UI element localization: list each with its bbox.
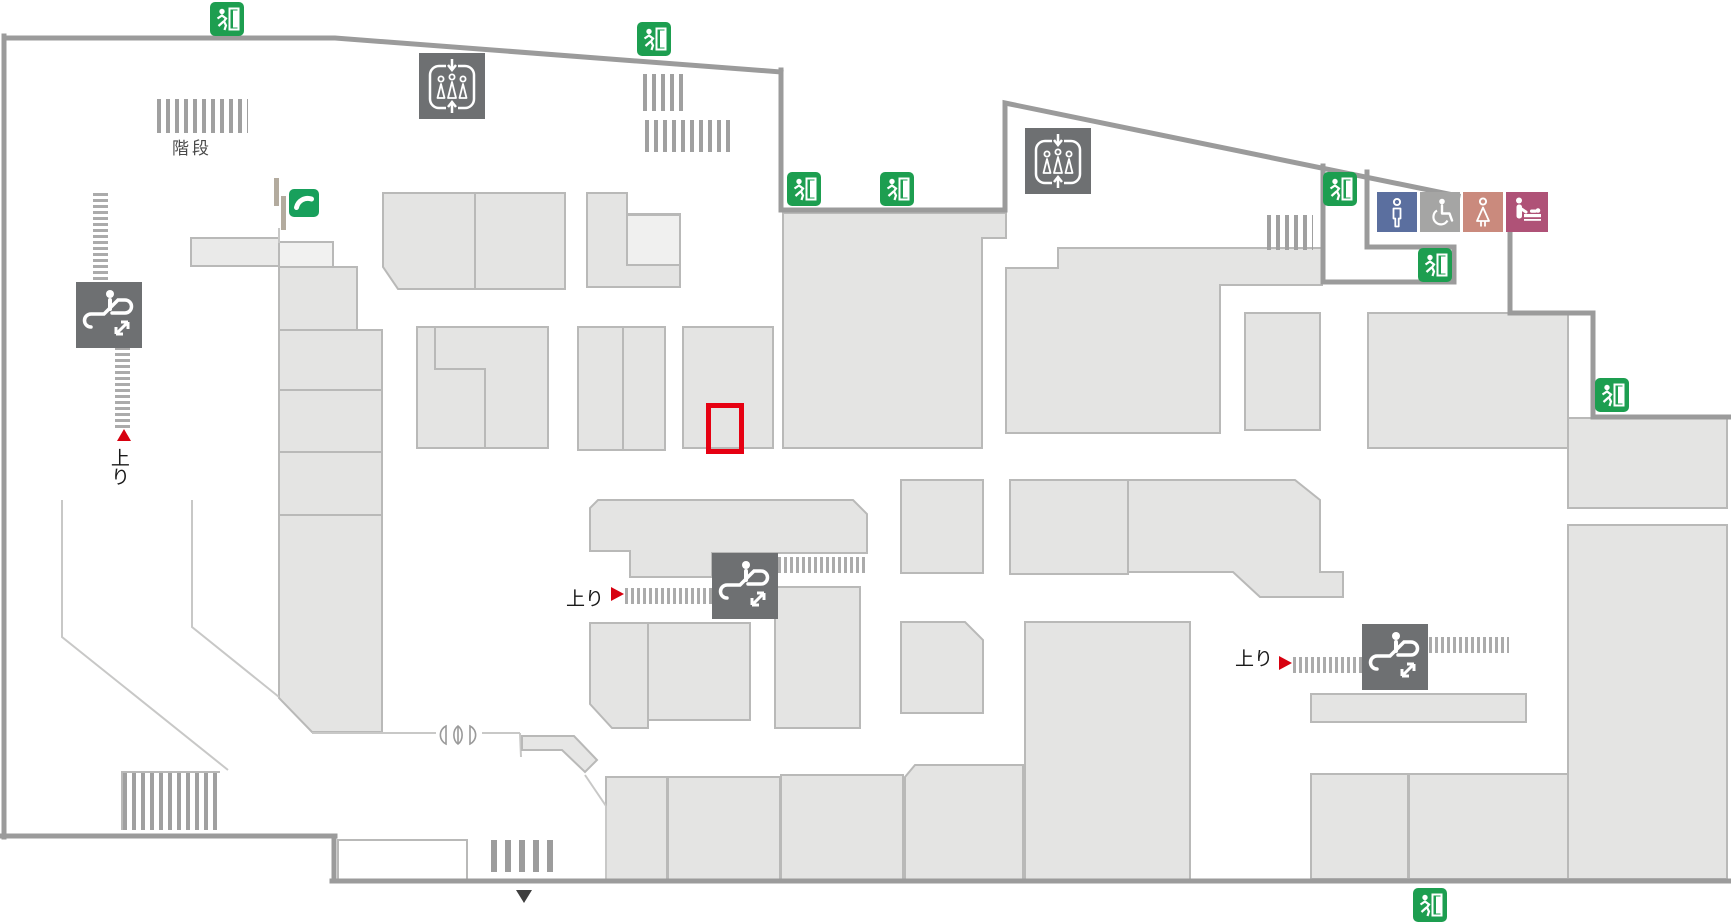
shop-block <box>578 327 665 450</box>
shop-block <box>279 390 382 452</box>
entrance-arrow-icon <box>516 890 532 903</box>
shop-block <box>279 515 382 732</box>
up-arrow-icon <box>1279 656 1292 670</box>
up-arrow-icon <box>611 587 624 601</box>
shop-block <box>648 623 750 720</box>
wall-segment <box>274 178 279 206</box>
shop-block <box>627 215 680 265</box>
shop-block <box>279 452 382 515</box>
stairs-hatch-top-left <box>157 99 248 133</box>
entrance-hatch-bottom <box>491 840 558 872</box>
mens-restroom-icon <box>1377 192 1417 232</box>
shop-block <box>417 327 548 448</box>
womens-restroom-icon <box>1463 192 1503 232</box>
shop-block <box>1311 774 1408 879</box>
entrance-recess <box>338 840 467 880</box>
shop-block <box>279 242 333 267</box>
shop-block <box>905 765 1023 880</box>
floor-map: 階段 上り 上り 上り <box>0 0 1731 924</box>
shop-block <box>1368 313 1568 448</box>
building-outline <box>2 36 1731 881</box>
emergency-exit-icon <box>1413 888 1447 922</box>
up-label-center: 上り <box>566 584 604 611</box>
shop-block <box>1568 525 1727 879</box>
escalator-icon <box>76 282 142 348</box>
floorplan-canvas <box>0 0 1731 924</box>
escalator-icon <box>1362 624 1428 690</box>
shop-block <box>1010 480 1128 574</box>
escalator-run <box>778 557 866 573</box>
entrance-ramp <box>522 736 597 772</box>
shop-block <box>775 587 860 728</box>
shop-block <box>590 623 648 728</box>
emergency-exit-icon <box>787 172 821 206</box>
up-label-right: 上り <box>1235 644 1273 671</box>
shop-block <box>279 330 382 390</box>
escalator-run <box>115 347 130 430</box>
elevator-icon <box>419 53 485 119</box>
emergency-exit-icon <box>637 22 671 56</box>
door-gate-icon <box>434 724 482 746</box>
escalator-run <box>625 588 712 604</box>
shop-blocks <box>191 193 1727 880</box>
shop-block <box>668 777 780 880</box>
emergency-exit-icon <box>1323 172 1357 206</box>
shop-block <box>606 777 667 880</box>
stairs-hatch-top-center-a <box>643 74 683 111</box>
public-phone-icon <box>289 189 319 217</box>
shop-block <box>1128 480 1343 597</box>
shop-block <box>1025 622 1190 880</box>
up-arrow-icon <box>117 429 131 441</box>
escalator-icon <box>712 553 778 619</box>
stairs-label: 階段 <box>172 134 212 159</box>
shop-block <box>901 622 983 713</box>
emergency-exit-icon <box>1418 248 1452 282</box>
wall-segment <box>281 196 286 230</box>
up-label-left: 上り <box>108 448 129 486</box>
emergency-exit-icon <box>210 2 244 36</box>
escalator-run <box>1293 657 1362 673</box>
elevator-icon <box>1025 128 1091 194</box>
shop-block <box>1409 774 1568 879</box>
escalator-run <box>1429 637 1509 653</box>
shop-block <box>1311 694 1526 722</box>
shop-block <box>191 238 279 266</box>
stairs-hatch-top-right <box>1267 215 1313 250</box>
escalator-run <box>93 193 108 282</box>
shop-block <box>901 480 983 573</box>
shop-block <box>279 267 357 330</box>
shop-block <box>781 775 903 880</box>
emergency-exit-icon <box>1595 378 1629 412</box>
emergency-exit-icon <box>880 172 914 206</box>
shop-block <box>1245 313 1320 430</box>
accessible-restroom-icon <box>1420 192 1460 232</box>
shop-block <box>783 213 1006 448</box>
stairs-hatch-bottom-left <box>121 771 220 830</box>
current-location-highlight <box>706 403 744 454</box>
stairs-hatch-top-center-b <box>645 120 730 152</box>
baby-changing-icon <box>1506 192 1548 232</box>
shop-block <box>1568 418 1727 508</box>
